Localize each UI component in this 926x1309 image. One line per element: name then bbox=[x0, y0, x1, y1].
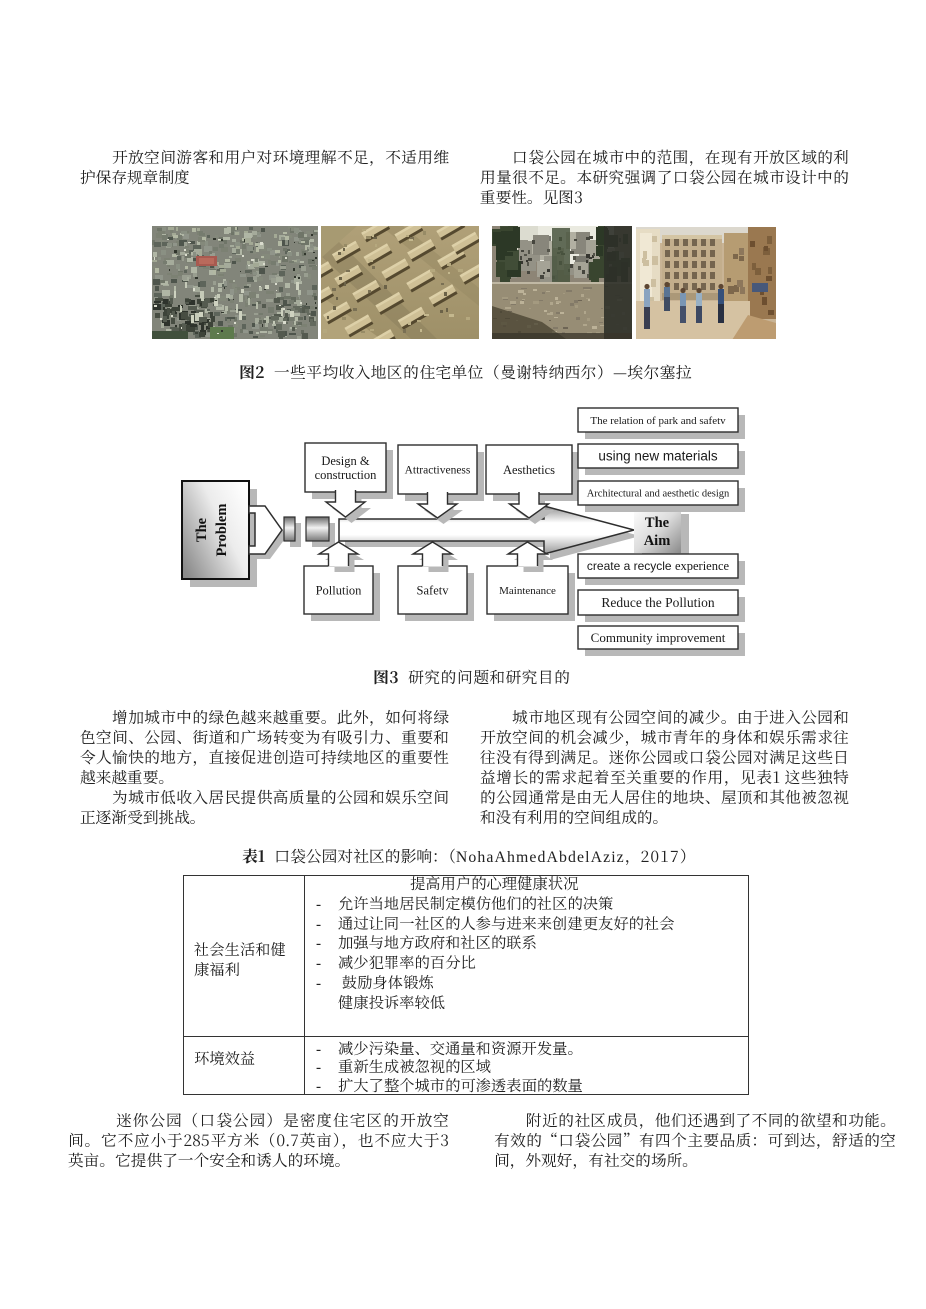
svg-text:Aim: Aim bbox=[644, 533, 671, 549]
svg-text:Aesthetics: Aesthetics bbox=[503, 463, 555, 477]
svg-text:Architectural and aesthetic de: Architectural and aesthetic design bbox=[587, 489, 730, 500]
svg-text:Safetv: Safetv bbox=[417, 583, 450, 597]
svg-text:Maintenance: Maintenance bbox=[499, 585, 556, 597]
svg-text:Problem: Problem bbox=[214, 504, 230, 557]
svg-text:construction: construction bbox=[315, 468, 378, 482]
svg-text:The: The bbox=[194, 517, 210, 542]
svg-text:Attractiveness: Attractiveness bbox=[405, 465, 471, 477]
svg-text:Pollution: Pollution bbox=[316, 583, 363, 597]
svg-text:The relation of park and safet: The relation of park and safetv bbox=[590, 415, 726, 427]
svg-text:Reduce the Pollution: Reduce the Pollution bbox=[601, 595, 714, 610]
svg-text:using new materials: using new materials bbox=[598, 449, 718, 464]
svg-text:Community improvement: Community improvement bbox=[591, 630, 726, 645]
svg-text:The: The bbox=[645, 515, 670, 531]
svg-text:Design &: Design & bbox=[321, 454, 370, 468]
svg-text:create a recycle experience: create a recycle experience bbox=[587, 559, 730, 573]
